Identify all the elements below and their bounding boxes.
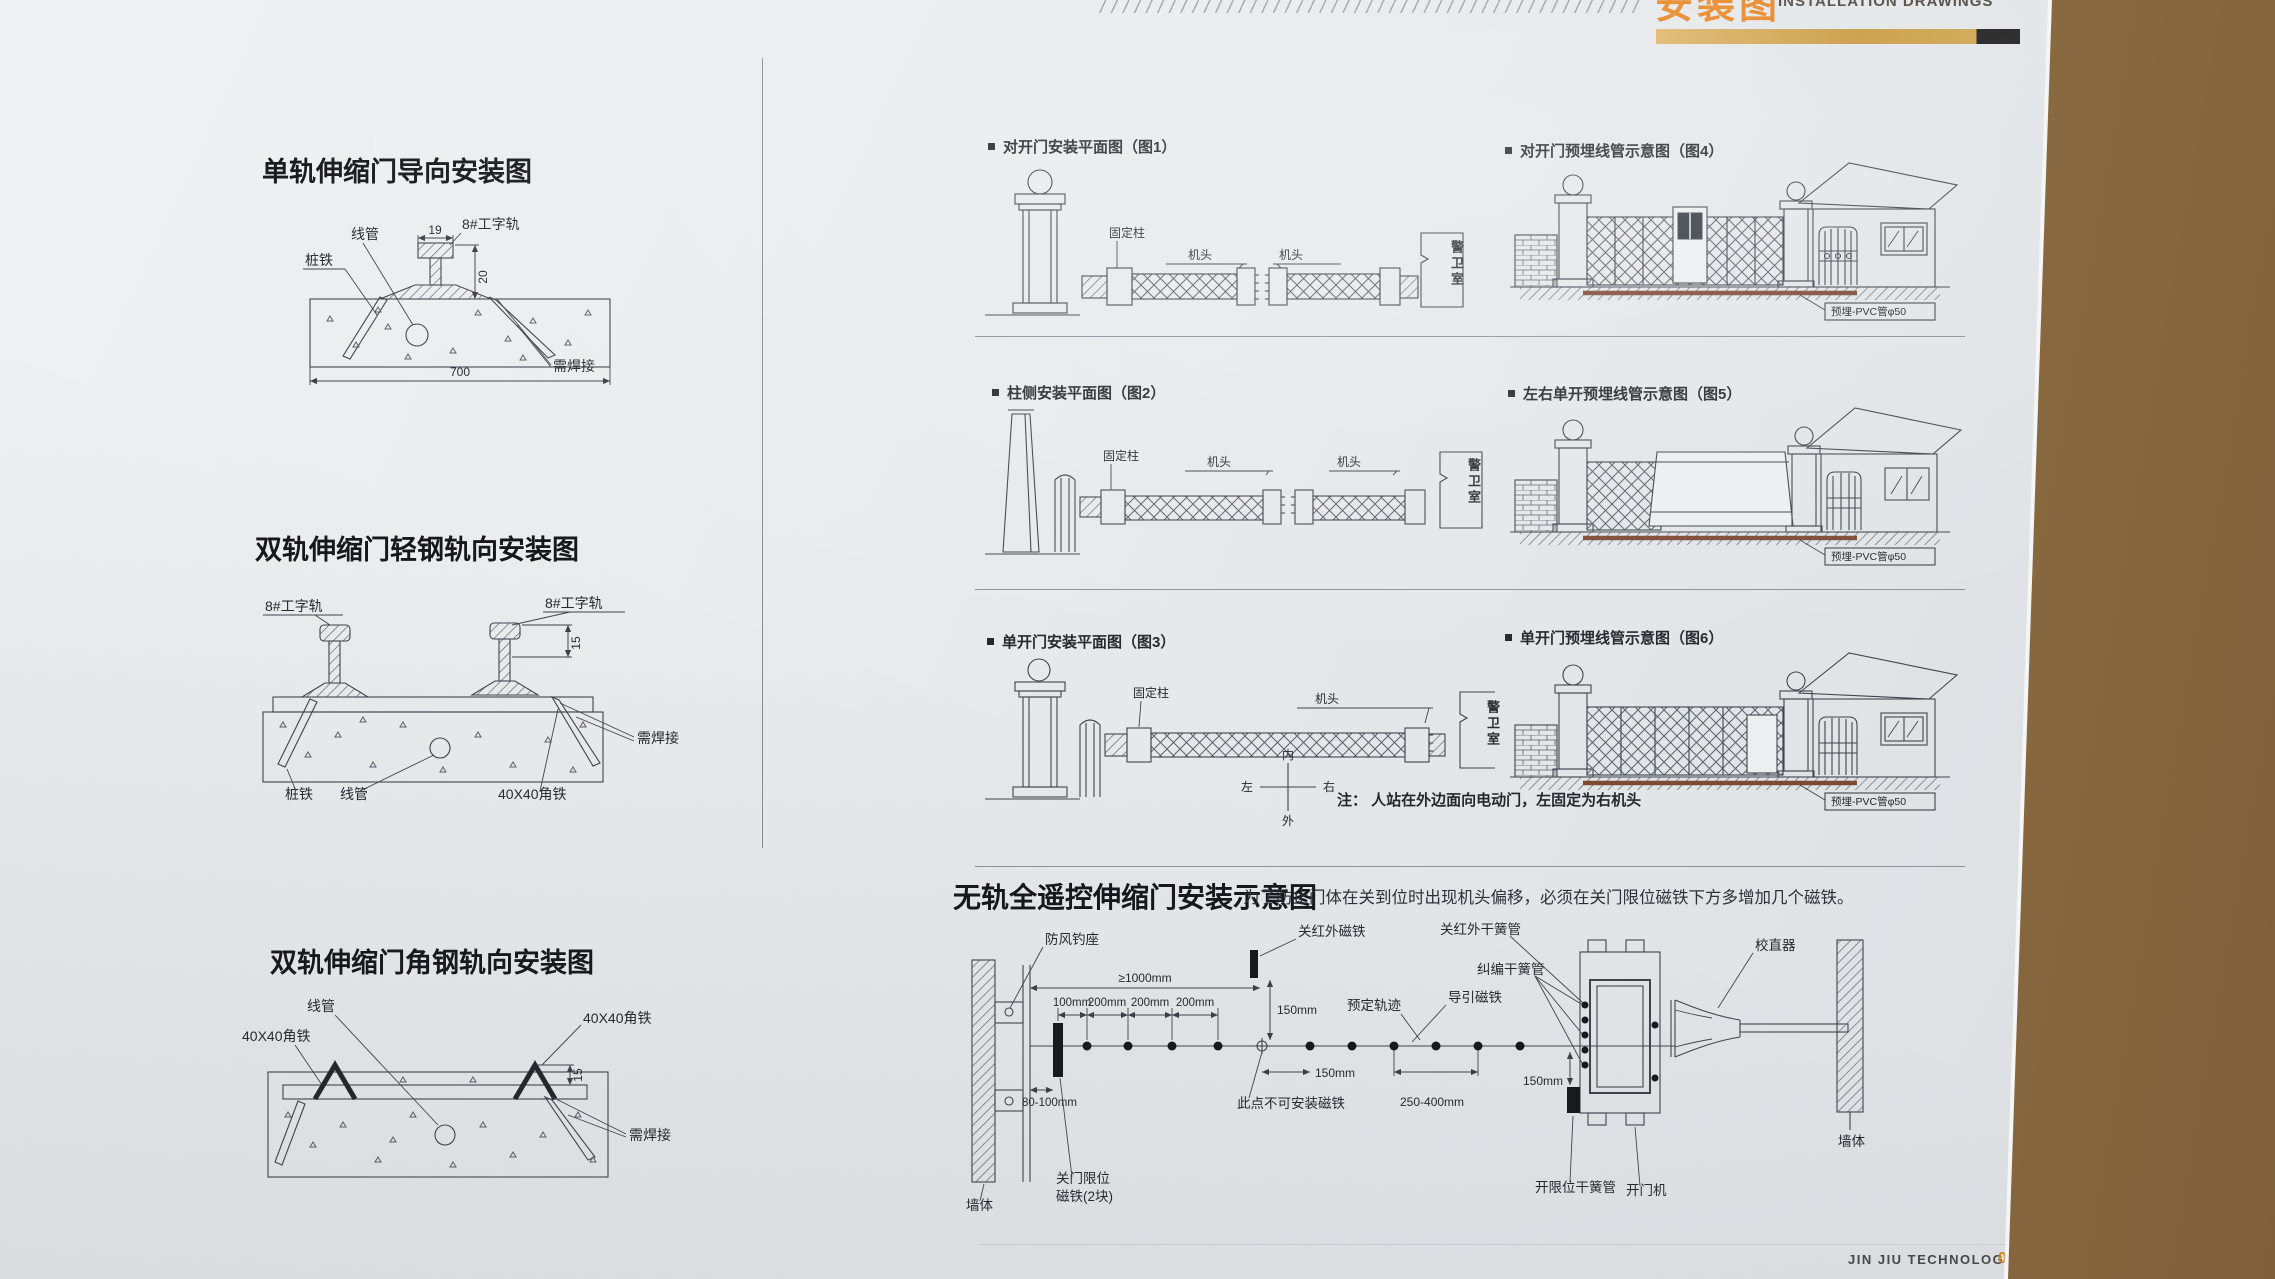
open-limit-reed-label: 开限位干簧管 [1535,1180,1616,1195]
trackless-diagram: 防风钓座 墙体 ≥1000mm 100mm 200mm 200mm 200mm [950,920,1930,1220]
arch-post [1080,720,1100,797]
stake-left [275,1101,305,1165]
angle-label-left: 40X40角铁 [242,1028,310,1044]
concrete-block [310,297,610,367]
catalog-page: 安装图 INSTALLATION DRAWINGS 单轨伸缩门导向安装图 19 [0,0,2275,1279]
conduit-circle [435,1125,455,1145]
diagram3-angle-steel: 15 线管 40X40角铁 40X40角铁 需焊接 [240,985,740,1220]
dim-19: 19 [428,223,442,237]
dim-15: 15 [569,636,583,650]
guard-room-text: 警卫室 [1447,240,1466,288]
rail-label: 8#工字轨 [462,216,520,232]
dim-1000: ≥1000mm [1118,971,1171,985]
head-label-right: 机头 [1337,455,1361,469]
fixed-post [1107,268,1132,305]
bullet-icon [1508,390,1515,397]
fixed-post [1127,728,1151,762]
base-plate [283,1085,587,1099]
fixed-post [1101,490,1125,524]
column-divider [762,58,763,848]
retractable-fence [1587,707,1783,775]
head-label-left: 机头 [1188,248,1212,262]
pvc-label: 预埋-PVC管φ50 [1831,305,1906,318]
machine-head-left [1237,268,1255,305]
pvc-label: 预埋-PVC管φ50 [1831,795,1906,808]
bullet-icon [992,389,999,396]
header-tick-strip [1095,0,1643,13]
dim-200: 200mm [1088,997,1126,1009]
gate-leaf [1287,274,1380,299]
gate-run [1080,490,1425,524]
weld-label: 需焊接 [553,358,595,374]
rail-section [380,243,491,299]
diagram3-title: 双轨伸缩门角钢轨向安装图 [270,941,594,980]
dim-700: 700 [450,365,470,379]
dim-200: 200mm [1176,997,1214,1009]
guard-house [1799,163,1957,287]
guard-house [1807,408,1961,532]
bullet-icon [988,143,995,150]
compass-west: 左 [1241,779,1253,794]
stake-label: 桩铁 [285,786,313,802]
machine-head-right [1295,490,1313,524]
tall-column [985,410,1080,554]
track-label: 预定轨迹 [1347,998,1401,1013]
open-limit-magnet-bar [1567,1087,1580,1113]
diagram1-single-rail: 19 20 700 线管 8#工字轨 桩铁 需焊接 [265,195,655,400]
row2-plan-diagram: 固定柱 机头 机头 [985,400,1495,590]
retractable-fence [1587,207,1783,285]
correction-reed-label: 纠编干簧管 [1477,962,1545,977]
callouts: 线管 40X40角铁 40X40角铁 需焊接 [242,998,671,1143]
trackless-note: 为了防止门体在关到位时出现机头偏移，必须在关门限位磁铁下方多增加几个磁铁。 [1243,884,1854,908]
compass-south: 外 [1282,814,1294,828]
row1-perspective-diagram: 预埋-PVC管φ50 [1495,155,1965,355]
rail-label-right: 8#工字轨 [545,595,603,611]
straightener-rod [1740,1024,1848,1032]
no-magnet-label: 此点不可安装磁铁 [1237,1096,1345,1111]
row-divider [975,866,1965,867]
gate-leaf [1125,496,1263,520]
conduit-circle [406,324,428,346]
base-plate [273,697,593,712]
stake-left [343,297,387,359]
dim-20: 20 [476,270,490,284]
rails [302,623,538,697]
close-limit-label-1: 关门限位 [1056,1171,1110,1186]
fixed-post-label: 固定柱 [1133,685,1169,700]
dim-150-horiz: 150mm [1315,1066,1355,1080]
fixed-post-label: 固定柱 [1109,225,1145,240]
row1-plan-label: 对开门安装平面图（图1） [988,136,1176,157]
orientation-compass: 内 左 右 外 [1241,748,1335,828]
gate-leaf [1313,496,1405,520]
close-ir-magnet-bar [1250,950,1258,978]
angle-label-right: 40X40角铁 [583,1010,651,1026]
conduit-label: 线管 [307,998,335,1014]
machine-head-left [1263,490,1281,524]
footer-brand: JIN JIU TECHNOLOGY [1848,1252,2014,1267]
opener-label: 开门机 [1626,1183,1667,1198]
gate-run [1082,268,1418,305]
left-wall [972,960,1030,1182]
machine-head [1405,728,1429,762]
concrete-block [268,1065,608,1177]
gate-leaf [1151,733,1405,757]
rail-label-left: 8#工字轨 [265,598,323,614]
wind-hook-label: 防风钓座 [1045,932,1099,947]
row3-perspective-diagram: 预埋-PVC管φ50 [1495,645,1965,845]
close-limit-magnet-bar [1053,1023,1063,1077]
stake-label: 桩铁 [305,252,333,268]
compass-east: 右 [1323,779,1335,794]
row2-perspective-diagram: 预埋-PVC管φ50 [1495,400,1965,600]
footer-divider [980,1244,2008,1245]
close-ir-reed-label: 关红外干簧管 [1440,922,1521,937]
head-label: 机头 [1315,692,1339,706]
dim-150-vert: 150mm [1277,1003,1317,1017]
arch-post [1055,475,1075,552]
dim-200: 200mm [1131,997,1169,1009]
guard-house [1799,653,1957,777]
dim-15: 15 [571,1068,585,1082]
label-text: 对开门安装平面图（图1） [1003,136,1176,157]
dim-250-400: 250-400mm [1400,1095,1464,1109]
brick-wall [1515,480,1557,532]
conduit-label: 线管 [351,226,379,242]
page-title-cn: 安装图 [1655,0,1781,29]
dim-100: 100mm [1053,997,1091,1009]
bullet-icon [1505,634,1512,641]
row1-plan-diagram: 固定柱 机头 机头 [985,155,1495,355]
dim-80-100: 80-100mm [1022,1097,1077,1109]
gate-pillar [985,659,1080,799]
fixed-post-label: 固定柱 [1103,448,1139,463]
dimensions: 15 [512,625,583,657]
gate-leaf [1132,274,1237,299]
weld-label: 需焊接 [629,1127,671,1143]
gate-panel [1747,715,1777,773]
center-point [1254,1038,1270,1054]
row3-plan-diagram: 固定柱 机头 内 左 右 外 [985,645,1495,860]
head-label-left: 机头 [1207,455,1231,469]
page-title-en: INSTALLATION DRAWINGS [1778,0,1993,10]
dim-150-open: 150mm [1523,1074,1563,1088]
concrete-block [263,697,603,782]
brick-wall [1515,235,1557,287]
footer-page-number: 082 [1998,1250,2034,1268]
compass-north: 内 [1282,748,1294,762]
right-wall [1837,940,1863,1112]
header-gold-bar [1656,29,2020,44]
bullet-icon [987,638,994,645]
close-limit-label-2: 磁铁(2块) [1056,1189,1113,1204]
diagram1-title: 单轨伸缩门导向安装图 [262,150,532,189]
gate-canopy [1649,452,1793,526]
gate-opener-machine [1580,940,1660,1125]
machine-head-right [1269,268,1287,305]
conduit-label: 线管 [340,786,368,802]
gate-pillar [985,170,1080,315]
angle-iron-right [515,1065,555,1099]
guide-magnet-label: 导引磁铁 [1448,990,1502,1005]
weld-label: 需焊接 [637,730,679,746]
head-label-right: 机头 [1279,248,1303,262]
angle-label: 40X40角铁 [498,786,566,802]
gate-run [1105,728,1445,762]
wall-label-right: 墙体 [1838,1134,1866,1149]
brick-wall [1515,725,1557,777]
pvc-label: 预埋-PVC管φ50 [1831,550,1906,563]
straightener [1671,1000,1848,1057]
angle-iron-left [315,1065,355,1099]
diagram2-title: 双轨伸缩门轻钢轨向安装图 [255,528,579,567]
close-ir-magnet-label: 关红外磁铁 [1298,924,1366,939]
guard-room-text: 警卫室 [1464,458,1483,506]
stake-right [489,297,555,358]
straightener-label: 校直器 [1755,937,1796,953]
bullet-icon [1505,147,1512,154]
diagram2-light-steel: 15 8#工字轨 8#工字轨 需焊接 桩铁 线管 40X40角铁 [240,585,710,820]
